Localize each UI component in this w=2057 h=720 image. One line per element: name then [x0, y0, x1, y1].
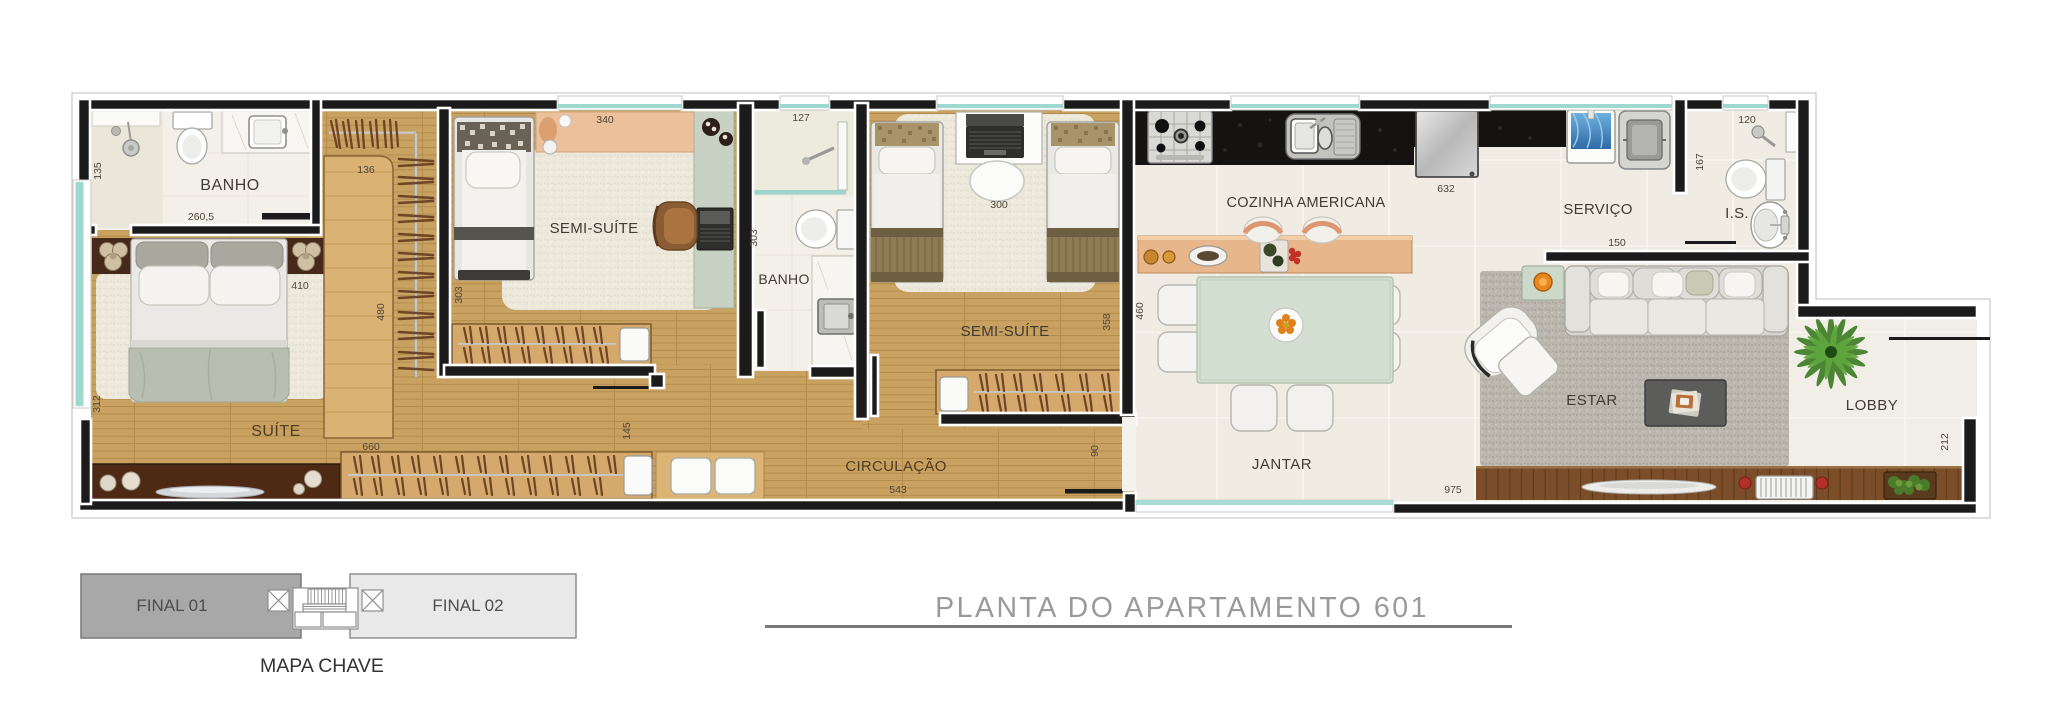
svg-text:JANTAR: JANTAR — [1252, 456, 1312, 473]
svg-text:ESTAR: ESTAR — [1566, 392, 1617, 409]
svg-text:SEMI-SUÍTE: SEMI-SUÍTE — [550, 220, 639, 237]
svg-text:FINAL 01: FINAL 01 — [136, 596, 207, 615]
svg-text:SEMI-SUÍTE: SEMI-SUÍTE — [961, 323, 1050, 340]
svg-text:PLANTA DO APARTAMENTO 601: PLANTA DO APARTAMENTO 601 — [935, 592, 1429, 624]
svg-text:BANHO: BANHO — [758, 271, 809, 287]
svg-text:480: 480 — [375, 303, 387, 321]
svg-text:260,5: 260,5 — [188, 211, 214, 223]
svg-text:632: 632 — [1437, 183, 1455, 195]
svg-text:543: 543 — [889, 484, 907, 496]
svg-text:LOBBY: LOBBY — [1846, 397, 1899, 414]
svg-text:90: 90 — [1089, 445, 1101, 457]
svg-text:150: 150 — [1608, 237, 1626, 249]
svg-text:410: 410 — [291, 280, 309, 292]
svg-text:300: 300 — [990, 199, 1008, 211]
svg-text:SUÍTE: SUÍTE — [251, 421, 301, 440]
svg-text:BANHO: BANHO — [200, 177, 259, 194]
svg-text:303: 303 — [748, 229, 760, 247]
svg-text:303: 303 — [453, 286, 465, 304]
svg-text:340: 340 — [596, 114, 614, 126]
svg-text:460: 460 — [1134, 302, 1146, 320]
svg-text:MAPA CHAVE: MAPA CHAVE — [260, 655, 384, 677]
svg-text:358: 358 — [1101, 313, 1113, 331]
svg-text:127: 127 — [792, 112, 810, 124]
svg-text:312: 312 — [91, 395, 103, 413]
svg-text:660: 660 — [362, 441, 380, 453]
svg-text:COZINHA AMERICANA: COZINHA AMERICANA — [1227, 195, 1386, 211]
svg-text:167: 167 — [1694, 153, 1706, 171]
svg-text:SERVIÇO: SERVIÇO — [1563, 201, 1632, 218]
svg-text:I.S.: I.S. — [1725, 205, 1749, 222]
svg-text:CIRCULAÇÃO: CIRCULAÇÃO — [845, 458, 946, 475]
svg-text:120: 120 — [1738, 114, 1756, 126]
svg-text:136: 136 — [357, 164, 375, 176]
svg-text:212: 212 — [1939, 433, 1951, 451]
svg-text:145: 145 — [621, 422, 633, 440]
svg-text:975: 975 — [1444, 484, 1462, 496]
svg-text:FINAL 02: FINAL 02 — [432, 596, 503, 615]
svg-text:135: 135 — [92, 162, 104, 180]
